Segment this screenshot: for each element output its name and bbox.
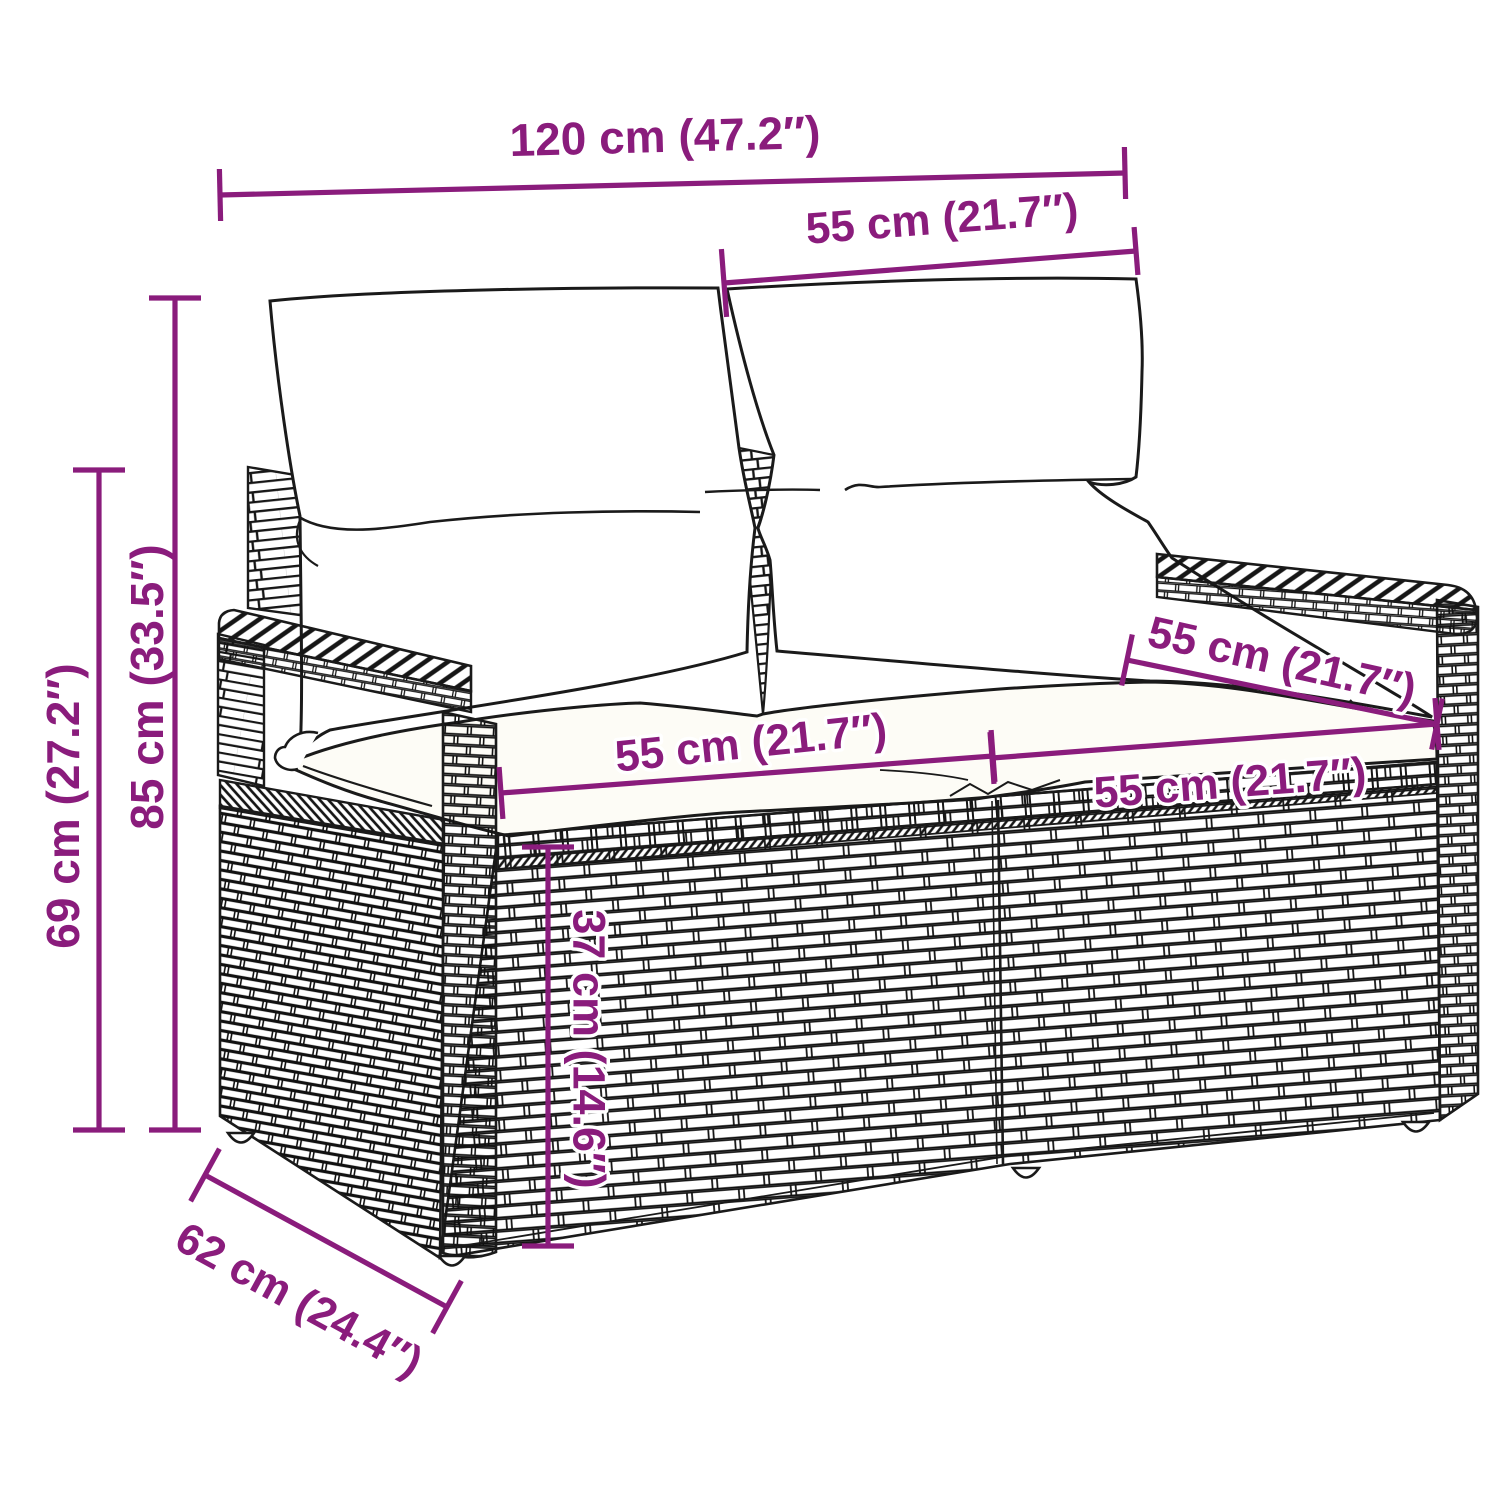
svg-text:69 cm (27.2″): 69 cm (27.2″) — [37, 663, 89, 948]
svg-text:37 cm (14.6″): 37 cm (14.6″) — [564, 909, 615, 1188]
svg-text:85 cm (33.5″): 85 cm (33.5″) — [121, 544, 173, 829]
svg-text:120 cm (47.2″): 120 cm (47.2″) — [509, 106, 821, 166]
